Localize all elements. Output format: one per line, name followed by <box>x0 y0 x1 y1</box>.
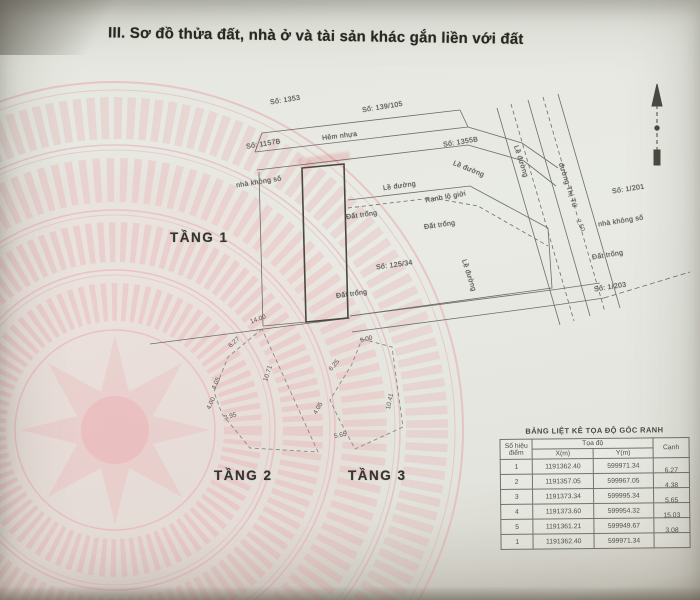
point-number: 3 <box>501 489 533 504</box>
x-coordinate: 1191357.05 <box>533 474 594 490</box>
col-header-x: X(m) <box>532 449 593 460</box>
point-number: 1 <box>501 534 533 549</box>
y-coordinate: 599954.32 <box>594 503 654 519</box>
scanned-land-certificate-page: III. Sơ đồ thửa đất, nhà ở và tài sản kh… <box>0 0 700 600</box>
y-coordinate: 599967.05 <box>593 473 653 489</box>
y-coordinate: 599971.34 <box>594 533 654 549</box>
floor1-label: TẦNG 1 <box>170 230 229 245</box>
edge-value: 3.08 <box>655 527 690 534</box>
floor3-label: TẦNG 3 <box>348 468 407 483</box>
point-number: 2 <box>500 474 532 489</box>
col-header-y: Y(m) <box>593 448 653 459</box>
floor2-label: TẦNG 2 <box>214 468 273 483</box>
y-coordinate: 599971.34 <box>593 458 653 474</box>
x-coordinate: 1191362.40 <box>533 459 594 475</box>
coordinate-table-section: BẢNG LIỆT KÊ TỌA ĐỘ GÓC RANH Số hiệu điể… <box>499 425 690 550</box>
edge-value: 5.65 <box>654 497 689 504</box>
edge-length: 3.08 <box>654 533 690 548</box>
y-coordinate: 599949.67 <box>594 518 654 534</box>
x-coordinate: 1191373.34 <box>533 489 594 505</box>
edge-value: 15.03 <box>654 512 689 519</box>
point-number: 4 <box>501 504 533 519</box>
col-header-point: Số hiệu điểm <box>500 439 533 459</box>
x-coordinate: 1191361.21 <box>533 519 594 535</box>
x-coordinate: 1191362.40 <box>533 534 594 550</box>
col-header-edge: Cạnh <box>653 438 689 458</box>
edge-value: 4.38 <box>654 482 689 489</box>
north-arrow-icon <box>652 84 662 165</box>
y-coordinate: 599995.34 <box>593 488 653 504</box>
coordinate-table: Số hiệu điểm Tọa độ Cạnh X(m) Y(m) 1 119… <box>499 437 690 550</box>
point-number: 1 <box>500 459 532 474</box>
point-number: 5 <box>501 519 533 534</box>
coordinate-table-title: BẢNG LIỆT KÊ TỌA ĐỘ GÓC RANH <box>499 425 689 436</box>
edge-value: 6.27 <box>654 467 689 474</box>
x-coordinate: 1191373.60 <box>533 504 594 520</box>
table-row: 1 1191362.40 599971.34 3.08 <box>501 533 690 550</box>
